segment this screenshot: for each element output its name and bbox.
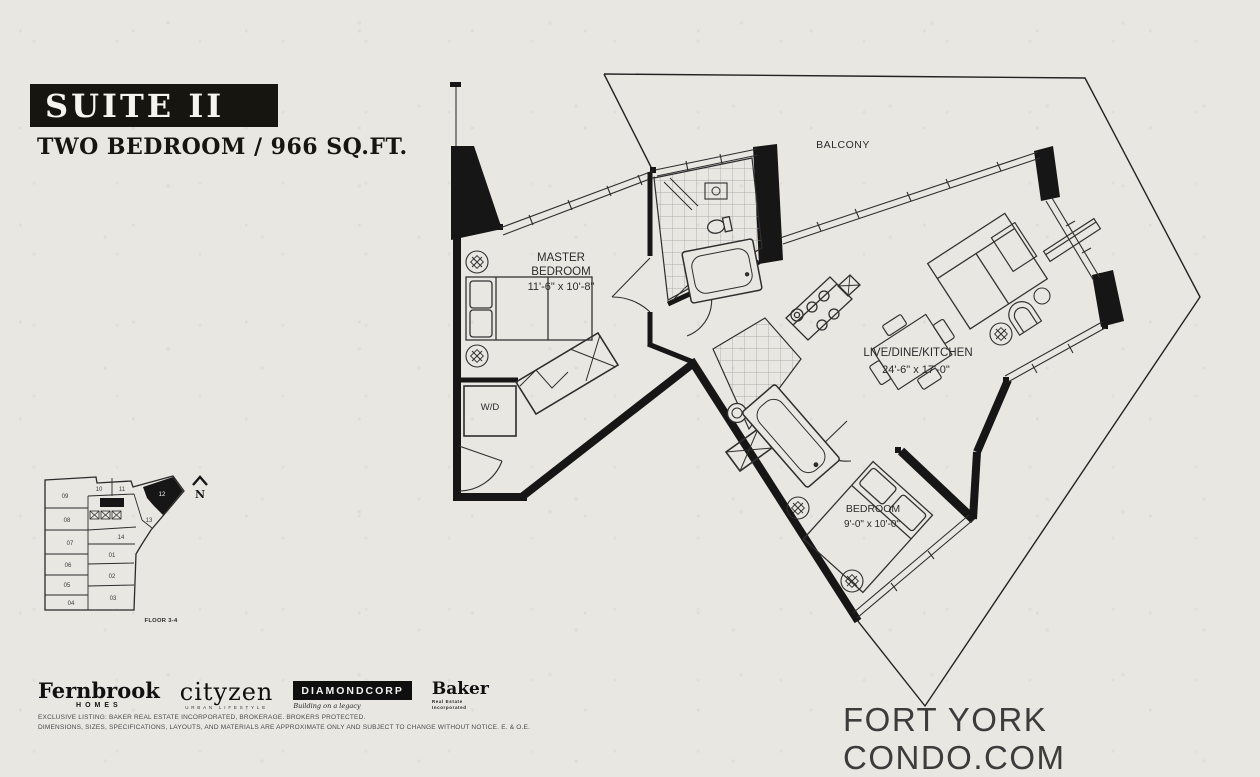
diamondcorp-wordmark: DIAMONDCORP [293, 681, 412, 700]
ensuite-bath [654, 158, 762, 303]
legal-text: EXCLUSIVE LISTING: BAKER REAL ESTATE INC… [38, 713, 530, 733]
keyplan-unit: 01 [109, 553, 116, 559]
coffee-table [991, 223, 1036, 272]
main-bath [713, 318, 840, 488]
keyplan-unit: 05 [64, 583, 71, 589]
fernbrook-logo: Fernbrook HOMES [38, 681, 160, 709]
keyplan-floor-label: FLOOR 3-4 [145, 618, 178, 624]
ceiling-symbol [841, 570, 863, 592]
ceiling-symbol [466, 251, 488, 273]
cityzen-wordmark: cityzen [180, 681, 274, 703]
keyplan-unit: 11 [119, 487, 126, 493]
lounge-chair [1004, 297, 1042, 335]
fernbrook-wordmark: Fernbrook [38, 681, 160, 701]
diamondcorp-tagline: Building on a legacy [293, 702, 360, 710]
floor-plan: W/D [0, 0, 1260, 765]
fernbrook-tagline: HOMES [76, 702, 122, 709]
cityzen-logo: cityzen URBAN LIFESTYLE [180, 681, 274, 710]
ceiling-symbol [990, 323, 1012, 345]
keyplan-unit: 04 [68, 601, 75, 607]
cityzen-tagline: URBAN LIFESTYLE [185, 705, 268, 710]
baker-wordmark: Baker [432, 681, 489, 697]
floorplan-sheet: { "colors": {"paper": "#e9e7e2", "ink": … [0, 0, 1260, 765]
north-arrow: N [193, 477, 207, 501]
keyplan-unit: 03 [110, 596, 117, 602]
keyplan-core [90, 498, 124, 519]
legal-line-2: DIMENSIONS, SIZES, SPECIFICATIONS, LAYOU… [38, 723, 530, 733]
living-dims: 24'-6" x 17'-0" [882, 364, 950, 376]
master-label-2: BEDROOM [531, 266, 590, 278]
baker-logo: Baker Real Estate Incorporated [432, 681, 489, 710]
key-plan: 09 10 11 12 08 13 14 07 06 01 05 02 04 0… [30, 468, 260, 633]
window-jambs [497, 167, 1108, 621]
bedroom-dims: 9'-0" x 10'-0" [844, 519, 900, 530]
keyplan-unit: 06 [65, 563, 72, 569]
logo-strip: Fernbrook HOMES cityzen URBAN LIFESTYLE … [38, 681, 489, 710]
keyplan-unit: 12 [159, 492, 166, 498]
balcony-label: BALCONY [816, 139, 870, 151]
keyplan-unit: 02 [109, 574, 116, 580]
keyplan-unit: 09 [62, 494, 69, 500]
master-dims: 11'-6" x 10'-8" [528, 281, 595, 293]
laundry-label: W/D [481, 402, 500, 413]
north-label: N [195, 488, 205, 501]
baker-tagline-line1: Real Estate [432, 699, 467, 705]
legal-line-1: EXCLUSIVE LISTING: BAKER REAL ESTATE INC… [38, 713, 530, 723]
keyplan-unit: 10 [96, 487, 103, 493]
living-label: LIVE/DINE/KITCHEN [863, 347, 972, 359]
master-label-1: MASTER [537, 252, 585, 264]
exterior-walls [451, 144, 1124, 621]
diamondcorp-logo: DIAMONDCORP Building on a legacy [293, 681, 412, 710]
bedroom-label: BEDROOM [846, 503, 900, 515]
keyplan-unit: 08 [64, 518, 71, 524]
ceiling-symbol [466, 345, 488, 367]
keyplan-unit: 14 [118, 535, 125, 541]
site-watermark: FORT YORK CONDO.COM [843, 701, 1260, 777]
baker-tagline: Real Estate Incorporated [432, 699, 467, 710]
baker-tagline-line2: Incorporated [432, 705, 467, 711]
keyplan-unit: 13 [146, 518, 153, 524]
tv-console [1044, 219, 1101, 262]
kitchen [786, 275, 860, 340]
window-walls [500, 149, 1105, 618]
side-table [1034, 288, 1050, 304]
keyplan-unit: 07 [67, 541, 74, 547]
balcony-outline [450, 74, 1200, 706]
